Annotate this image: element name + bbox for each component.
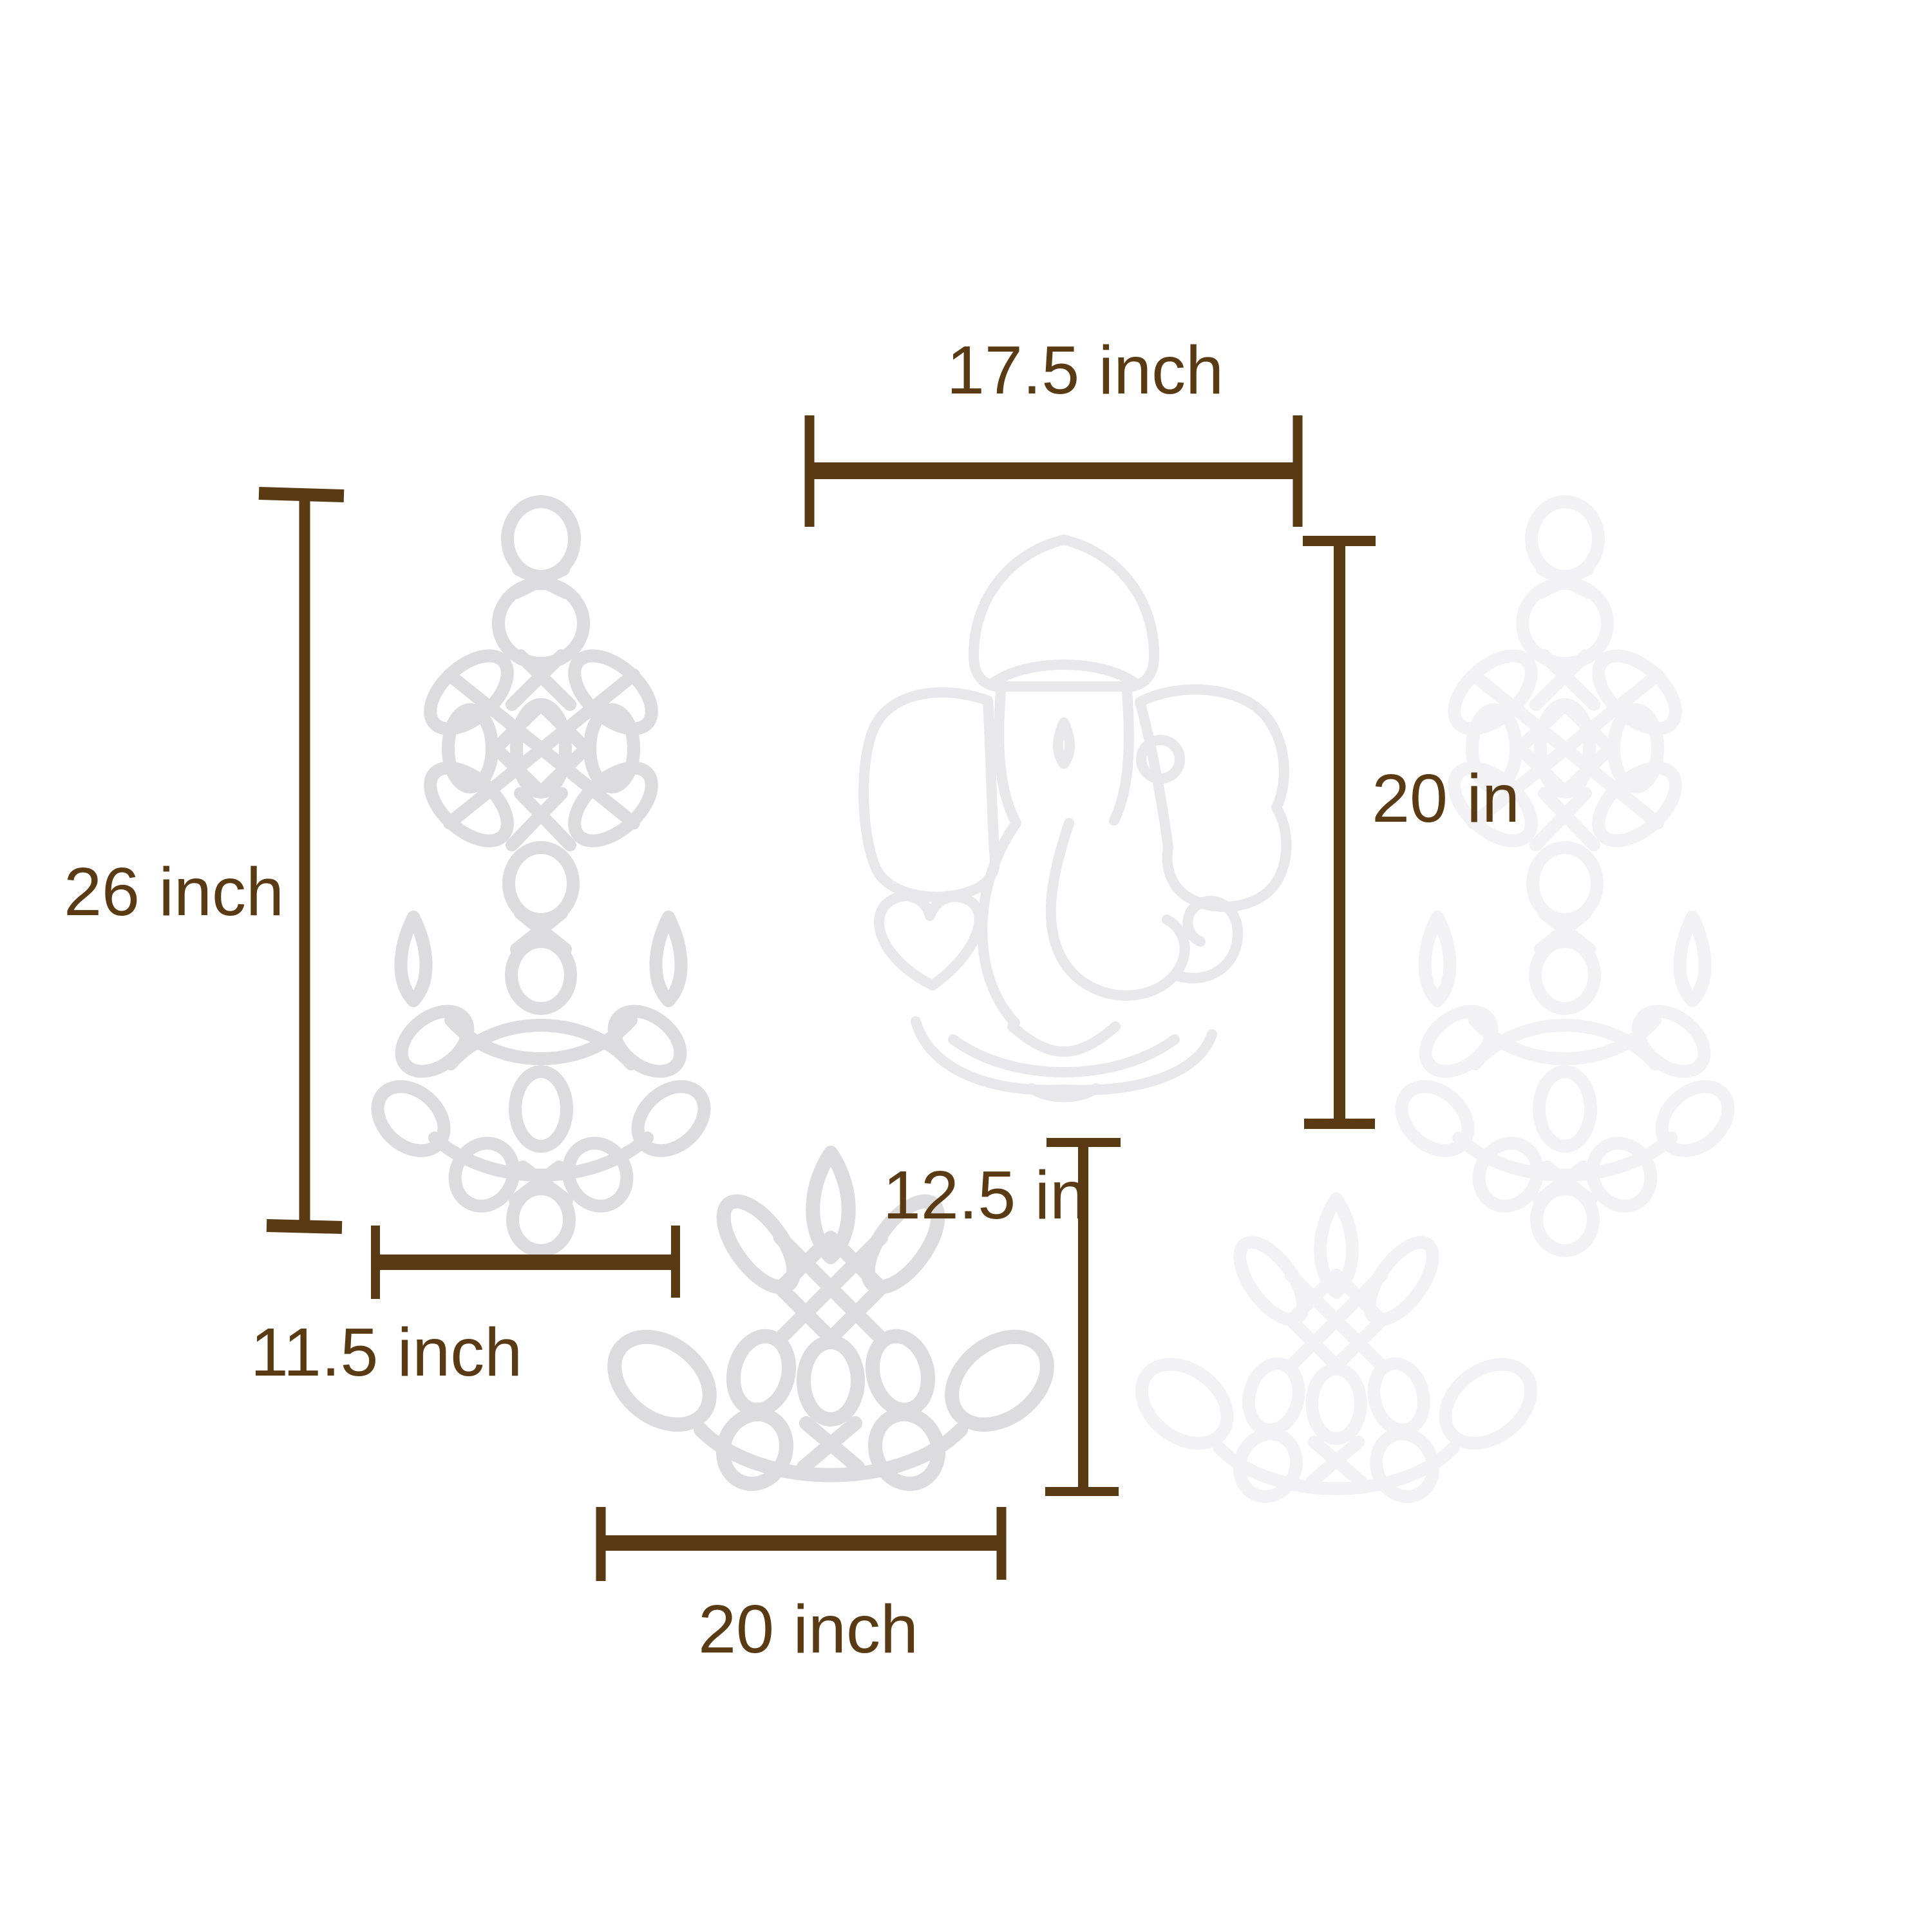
lotus-kolam-right-faint <box>1126 1198 1546 1505</box>
label-small-width: 11.5 inch <box>251 1318 522 1387</box>
lamp-kolam-right-faint <box>1389 502 1741 1251</box>
label-top-width: 17.5 inch <box>947 336 1224 404</box>
lamp-kolam-left <box>365 502 717 1251</box>
dim-line-top-width <box>810 415 1298 527</box>
product-dimension-diagram: 17.5 inch 26 inch 20 in 12.5 in 11.5 inc… <box>0 0 1932 1932</box>
label-lotus-height: 12.5 in <box>883 1161 1088 1229</box>
label-right-height: 20 in <box>1372 764 1520 833</box>
diagram-artwork <box>0 0 1932 1932</box>
dim-line-right-height <box>1303 541 1376 1124</box>
ganesha-kolam-outline <box>864 540 1286 1097</box>
label-lotus-width: 20 inch <box>698 1595 918 1663</box>
label-left-height: 26 inch <box>64 858 284 926</box>
dim-line-lotus-width <box>601 1507 1001 1581</box>
dim-line-small-width <box>375 1226 677 1299</box>
